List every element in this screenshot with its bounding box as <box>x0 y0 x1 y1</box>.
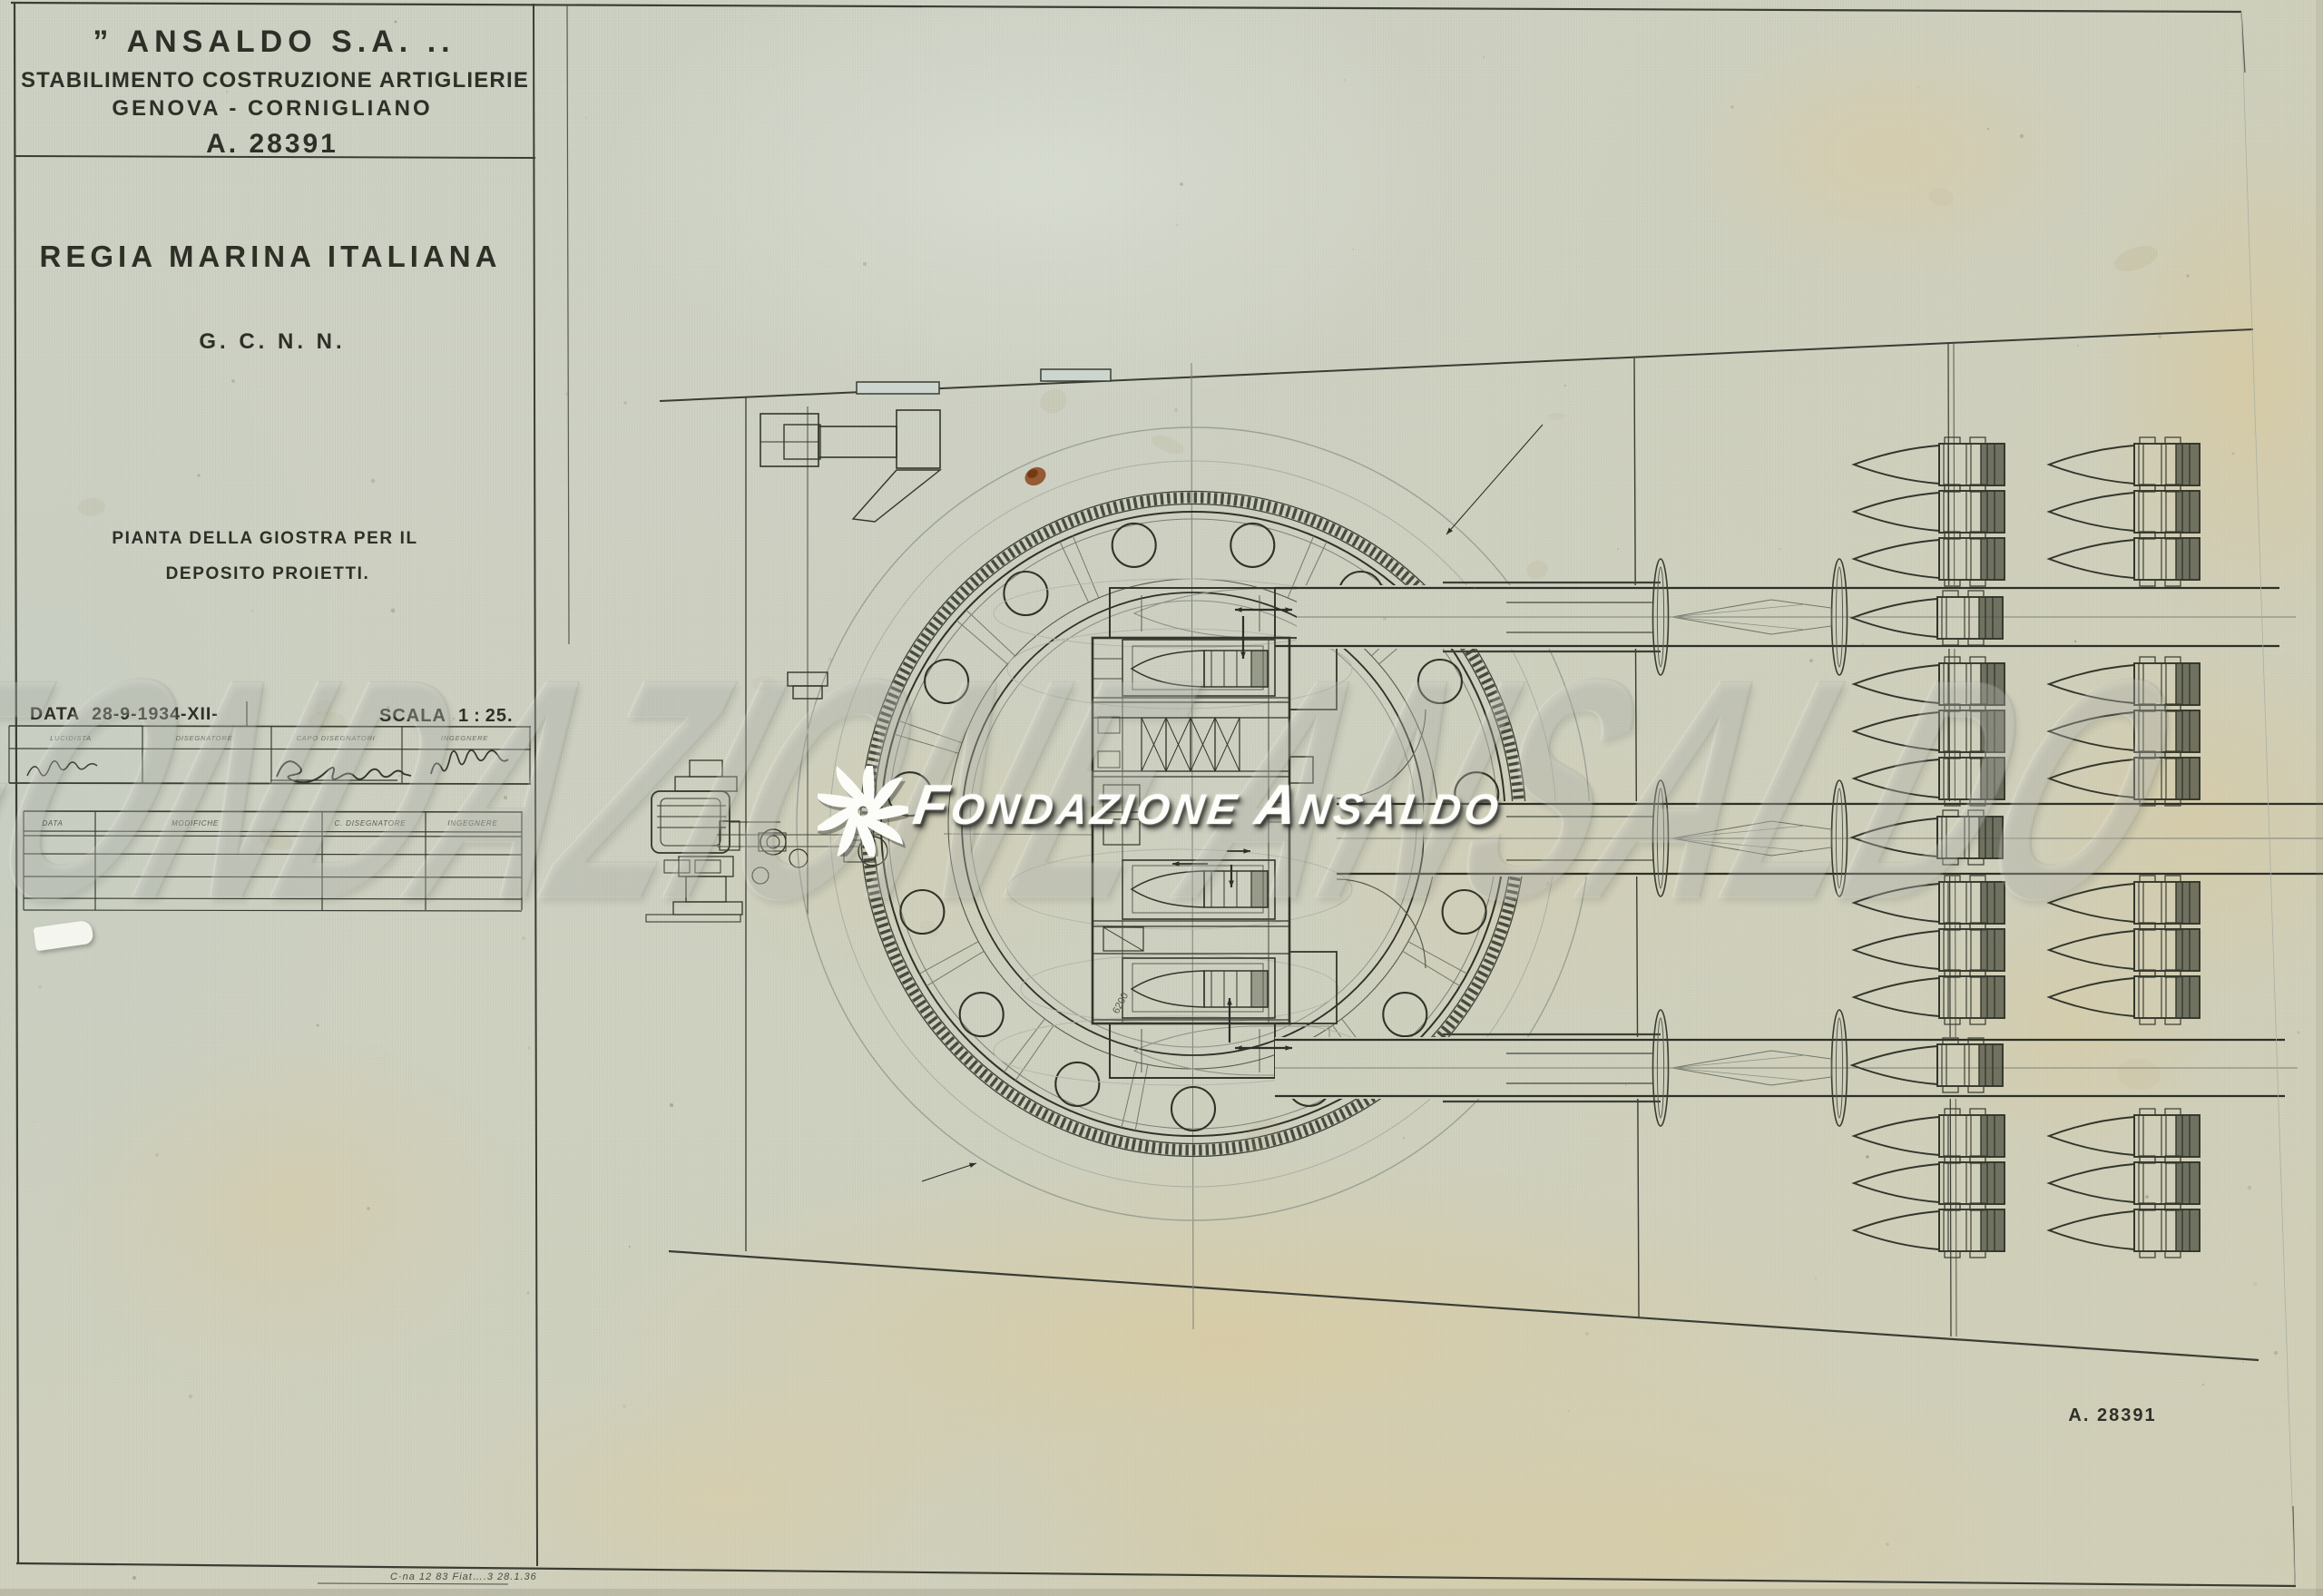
svg-text:REGIA MARINA ITALIANA: REGIA MARINA ITALIANA <box>40 240 502 273</box>
svg-text:PIANTA DELLA GIOSTRA PER I: PIANTA DELLA GIOSTRA PER IL <box>112 529 417 548</box>
svg-text:A. 28391: A. 28391 <box>2068 1405 2156 1425</box>
svg-text:STABILIMENTO COSTRUZIONE ART: STABILIMENTO COSTRUZIONE ARTIGLIERIE <box>21 68 529 93</box>
svg-text:GENOVA - CORNIGLIANO: GENOVA - CORNIGLIANO <box>112 96 432 121</box>
svg-text:6200: 6200 <box>1111 991 1131 1015</box>
svg-text:DEPOSITO PROIETTI.: DEPOSITO PROIETTI. <box>166 564 370 583</box>
svg-text:G. C. N. N.: G. C. N. N. <box>199 329 345 354</box>
svg-text:A. 28391: A. 28391 <box>206 129 338 159</box>
svg-text:” ANSALDO S.A. ..: ” ANSALDO S.A. .. <box>93 24 455 59</box>
svg-text:C·na 12 83 Fiat….3 28.1.36: C·na 12 83 Fiat….3 28.1.36 <box>390 1572 537 1582</box>
